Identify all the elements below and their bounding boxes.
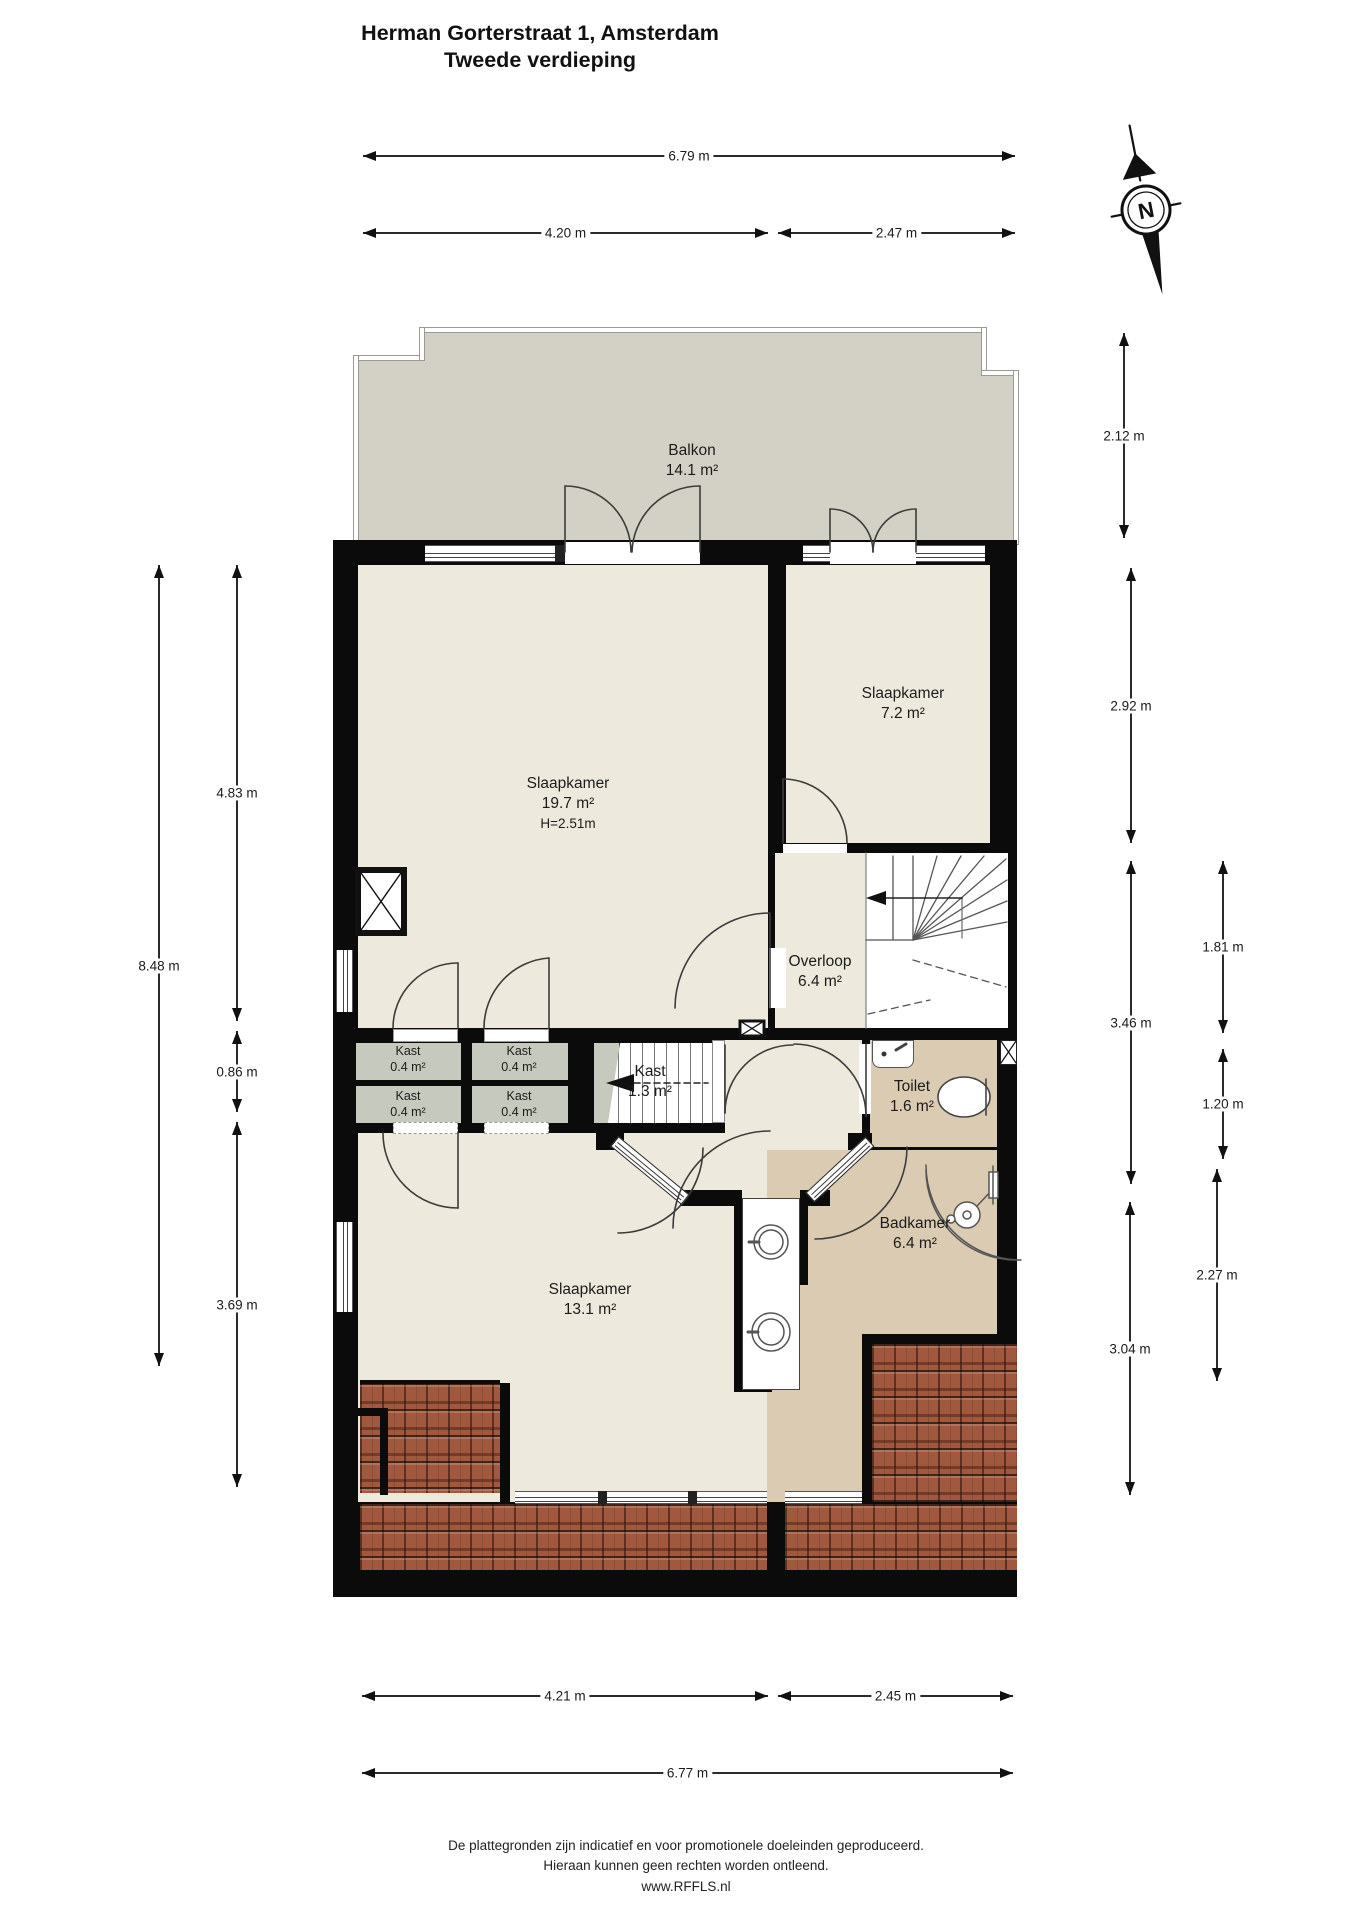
dimension-arrowhead [778,228,791,238]
room-height: H=2.51m [527,814,610,834]
dimension-arrowhead [1212,1368,1222,1381]
dimension-arrowhead [362,1768,375,1778]
room-label-kast-13: Kast1.3 m² [628,1062,672,1102]
room-area: 6.4 m² [789,972,852,992]
dimension-label: 3.04 m [1105,1341,1154,1356]
dimension-arrowhead [755,1691,768,1701]
dimension-arrowhead [1218,1020,1228,1033]
dimension-label: 2.45 m [871,1689,920,1704]
dimension-arrowhead [232,565,242,578]
dimension-arrowhead [154,565,164,578]
room-area: 0.4 m² [390,1105,425,1121]
footer-disclaimer-2: Hieraan kunnen geen rechten worden ontle… [543,1856,828,1876]
room-name: Kast [390,1044,425,1060]
dimension-arrowhead [363,228,376,238]
room-area: 0.4 m² [390,1060,425,1076]
dimension-arrowhead [1126,861,1136,874]
dimension-arrowhead [1125,1482,1135,1495]
dimension-arrowhead [362,1691,375,1701]
dimension-arrowhead [232,1122,242,1135]
room-area: 0.4 m² [501,1105,536,1121]
dimension-label: 3.46 m [1106,1015,1155,1030]
room-label-kast-a: Kast0.4 m² [390,1044,425,1075]
dimension-label: 4.21 m [540,1689,589,1704]
room-area: 1.3 m² [628,1082,672,1102]
dimension-label: 1.20 m [1198,1097,1247,1112]
room-name: Kast [390,1089,425,1105]
dimension-arrowhead [232,1099,242,1112]
room-area: 1.6 m² [890,1097,934,1117]
dimension-arrowhead [1218,1146,1228,1159]
room-name: Badkamer [880,1214,951,1234]
room-label-badkamer: Badkamer6.4 m² [880,1214,951,1254]
dimension-arrowhead [232,1031,242,1044]
floor-plan-page: Herman Gorterstraat 1, Amsterdam Tweede … [0,0,1358,1920]
floor-plan: N Balkon14.1 m²Slaapkamer19.7 m²H=2.51mS… [0,0,1358,1920]
footer-website: www.RFFLS.nl [641,1877,730,1897]
room-area: 7.2 m² [862,704,945,724]
dimension-arrowhead [154,1353,164,1366]
room-name: Slaapkamer [549,1280,632,1300]
dimension-label: 6.77 m [663,1766,712,1781]
room-name: Kast [628,1062,672,1082]
room-name: Balkon [666,441,719,461]
dimension-arrowhead [1218,861,1228,874]
dimension-label: 2.47 m [872,226,921,241]
room-area: 13.1 m² [549,1300,632,1320]
dimension-arrowhead [1119,525,1129,538]
shaft-boxes [358,870,1016,1063]
room-name: Slaapkamer [527,774,610,794]
room-label-balkon: Balkon14.1 m² [666,441,719,481]
room-label-kast-d: Kast0.4 m² [501,1089,536,1120]
balcony-door-swings [565,486,916,552]
dimension-arrowhead [363,151,376,161]
dimension-arrowhead [1002,228,1015,238]
staircase [866,853,1007,1028]
dimension-arrowhead [1212,1169,1222,1182]
dimension-arrowhead [1119,333,1129,346]
room-area: 14.1 m² [666,461,719,481]
dimension-label: 0.86 m [212,1064,261,1079]
dimension-arrowhead [755,228,768,238]
dimension-arrowhead [1218,1049,1228,1062]
dimension-label: 2.12 m [1099,428,1148,443]
room-label-slaapkamer-7: Slaapkamer7.2 m² [862,684,945,724]
room-name: Kast [501,1044,536,1060]
dimension-arrowhead [1002,151,1015,161]
plan-linework: N [0,0,1358,1920]
room-name: Toilet [890,1077,934,1097]
room-area: 0.4 m² [501,1060,536,1076]
dimension-arrowhead [1000,1768,1013,1778]
washbasins [748,1225,790,1351]
dimension-arrowhead [1126,1171,1136,1184]
dimension-arrowhead [232,1474,242,1487]
dimension-label: 4.83 m [212,786,261,801]
room-label-kast-c: Kast0.4 m² [390,1089,425,1120]
dimension-label: 3.69 m [212,1297,261,1312]
room-label-overloop: Overloop6.4 m² [789,952,852,992]
room-name: Kast [501,1089,536,1105]
dimension-label: 2.27 m [1192,1268,1241,1283]
room-label-toilet: Toilet1.6 m² [890,1077,934,1117]
dimension-label: 1.81 m [1198,940,1247,955]
dimension-arrowhead [1125,1202,1135,1215]
dimension-arrowhead [232,1008,242,1021]
dimension-label: 8.48 m [134,958,183,973]
dimension-label: 4.20 m [541,226,590,241]
room-label-kast-b: Kast0.4 m² [501,1044,536,1075]
dimension-arrowhead [778,1691,791,1701]
dimension-arrowhead [1126,830,1136,843]
dimension-label: 6.79 m [664,149,713,164]
room-label-slaapkamer-19: Slaapkamer19.7 m²H=2.51m [527,774,610,834]
room-area: 19.7 m² [527,794,610,814]
room-label-slaapkamer-13: Slaapkamer13.1 m² [549,1280,632,1320]
dimension-arrowhead [1000,1691,1013,1701]
dimension-label: 2.92 m [1106,698,1155,713]
footer-disclaimer-1: De plattegronden zijn indicatief en voor… [448,1836,924,1856]
dimension-arrowhead [1126,568,1136,581]
door-swings [383,779,907,1239]
compass-rose: N [1095,119,1197,301]
room-name: Overloop [789,952,852,972]
room-name: Slaapkamer [862,684,945,704]
room-area: 6.4 m² [880,1234,951,1254]
